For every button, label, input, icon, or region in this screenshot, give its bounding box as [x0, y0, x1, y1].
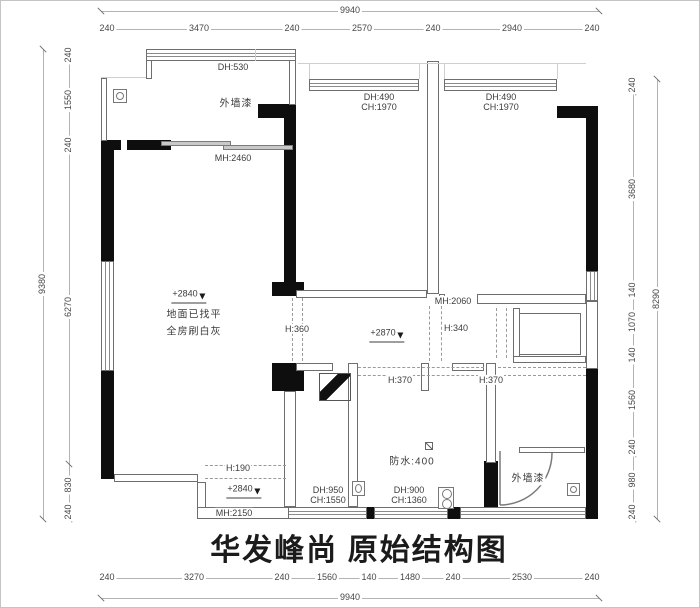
floorplan-canvas: 9940240347024025702402940240240327024015… — [0, 0, 700, 608]
wall-structural — [557, 106, 598, 118]
dimension-label: 240 — [582, 573, 601, 583]
label-balcony-exterior-paint: 外墙漆 — [219, 98, 254, 110]
floor-drain-icon — [425, 442, 433, 450]
dimension-label: 9940 — [338, 593, 362, 603]
drainpipe-symbol — [113, 89, 127, 103]
dimension-label: 9940 — [338, 6, 362, 16]
opening-dashed — [506, 308, 507, 358]
dimension-label: 980 — [628, 470, 638, 489]
label-bed1-window-ch: CH:1970 — [482, 102, 520, 112]
wall-structural — [101, 140, 121, 150]
facade-line — [419, 63, 420, 79]
label-balcony-door-height: MH:2460 — [214, 153, 253, 163]
wall-partition — [284, 391, 296, 507]
label-beam-h370-left: H:370 — [387, 375, 413, 385]
facade-line — [557, 63, 558, 79]
facade-line — [101, 77, 146, 78]
label-hall-door-height: MH:2060 — [434, 296, 473, 306]
wall-partition — [197, 482, 206, 508]
shower-symbol — [319, 373, 351, 401]
label-bed2-window-dh: DH:490 — [363, 92, 396, 102]
wall-structural — [367, 507, 374, 519]
beam-dashed — [358, 367, 484, 368]
facade-line — [309, 63, 310, 79]
window — [309, 79, 419, 91]
toilet-symbol — [352, 481, 365, 496]
drainpipe-symbol — [567, 483, 580, 496]
beam-dashed — [205, 478, 286, 479]
basin-symbol — [438, 487, 454, 509]
beam-dashed — [498, 375, 586, 376]
label-entry-level: +2840 — [226, 484, 261, 499]
wall-partition — [519, 313, 581, 355]
dimension-label: 240 — [423, 24, 442, 34]
window — [586, 271, 598, 301]
label-living-level: +2840 — [171, 289, 206, 304]
window — [374, 507, 448, 519]
dimension-label: 2940 — [500, 24, 524, 34]
label-bed2-window-ch: CH:1970 — [360, 102, 398, 112]
label-balcony-window-height: DH:530 — [217, 62, 250, 72]
dimension-line — [69, 49, 70, 519]
label-laundry-window-ch: CH:1360 — [390, 495, 428, 505]
wall-structural — [258, 104, 296, 118]
sliding-door-panel — [223, 145, 293, 150]
label-living-note-floor: 地面已找平 — [166, 309, 223, 321]
label-laundry-window-dh: DH:900 — [393, 485, 426, 495]
dimension-label: 1560 — [315, 573, 339, 583]
label-bath-window-ch: CH:1550 — [309, 495, 347, 505]
facade-line — [298, 63, 586, 64]
dimension-label: 1070 — [628, 310, 638, 334]
dimension-label: 3680 — [628, 177, 638, 201]
dimension-label: 240 — [97, 24, 116, 34]
dimension-label: 1480 — [398, 573, 422, 583]
wall-partition — [586, 301, 598, 369]
label-beam-h340: H:340 — [443, 323, 469, 333]
label-hall-level: +2870 — [369, 328, 404, 343]
wall-structural — [586, 369, 598, 519]
dimension-label: 830 — [64, 475, 74, 494]
opening-dashed — [496, 308, 497, 358]
label-beam-h370-right: H:370 — [478, 375, 504, 385]
wall-partition — [477, 294, 586, 304]
label-terrace-exterior-paint: 外墙漆 — [511, 473, 546, 485]
label-living-note-paint: 全房刷白灰 — [166, 326, 223, 338]
sliding-door-panel — [161, 141, 231, 146]
label-bath-window-dh: DH:950 — [312, 485, 345, 495]
dimension-label: 240 — [582, 24, 601, 34]
dimension-label: 6270 — [64, 295, 74, 319]
dimension-label: 8290 — [652, 287, 662, 311]
wall-partition — [114, 474, 198, 482]
wall-partition — [101, 78, 107, 141]
dimension-label: 240 — [64, 135, 74, 154]
window — [444, 79, 557, 91]
facade-line — [255, 49, 256, 61]
dimension-label: 240 — [64, 502, 74, 521]
label-entry-beam-h190: H:190 — [225, 463, 251, 473]
label-entry-door-height: MH:2150 — [215, 508, 254, 518]
dimension-label: 140 — [628, 280, 638, 299]
wall-structural — [586, 118, 598, 271]
beam-dashed — [358, 375, 484, 376]
dimension-label: 240 — [64, 45, 74, 64]
wall-partition — [427, 61, 439, 294]
drawing-title: 华发峰尚 原始结构图 — [210, 525, 508, 569]
dimension-label: 1550 — [64, 88, 74, 112]
window — [146, 49, 296, 61]
dimension-label: 3470 — [187, 24, 211, 34]
wall-structural — [101, 371, 114, 479]
dimension-label: 140 — [359, 573, 378, 583]
beam-dashed — [498, 367, 586, 368]
dimension-label: 240 — [282, 24, 301, 34]
window — [101, 261, 114, 371]
opening-dashed — [429, 306, 430, 361]
dimension-label: 240 — [97, 573, 116, 583]
dimension-label: 240 — [443, 573, 462, 583]
wall-partition — [296, 290, 427, 298]
label-beam-h360: H:360 — [284, 324, 310, 334]
dimension-label: 240 — [628, 502, 638, 521]
dimension-label: 140 — [628, 345, 638, 364]
dimension-label: 9380 — [38, 272, 48, 296]
window — [288, 507, 367, 519]
dimension-label: 240 — [628, 437, 638, 456]
dimension-label: 240 — [272, 573, 291, 583]
dimension-label: 3270 — [182, 573, 206, 583]
dimension-label: 2530 — [510, 573, 534, 583]
wall-structural — [101, 150, 114, 261]
facade-line — [444, 63, 445, 79]
dimension-label: 2570 — [350, 24, 374, 34]
wall-partition — [296, 363, 333, 371]
label-waterproof: 防水:400 — [388, 456, 435, 468]
dimension-label: 240 — [628, 75, 638, 94]
opening-dashed — [441, 306, 442, 361]
label-bed1-window-dh: DH:490 — [485, 92, 518, 102]
wall-partition — [513, 356, 586, 363]
dimension-label: 1560 — [628, 388, 638, 412]
